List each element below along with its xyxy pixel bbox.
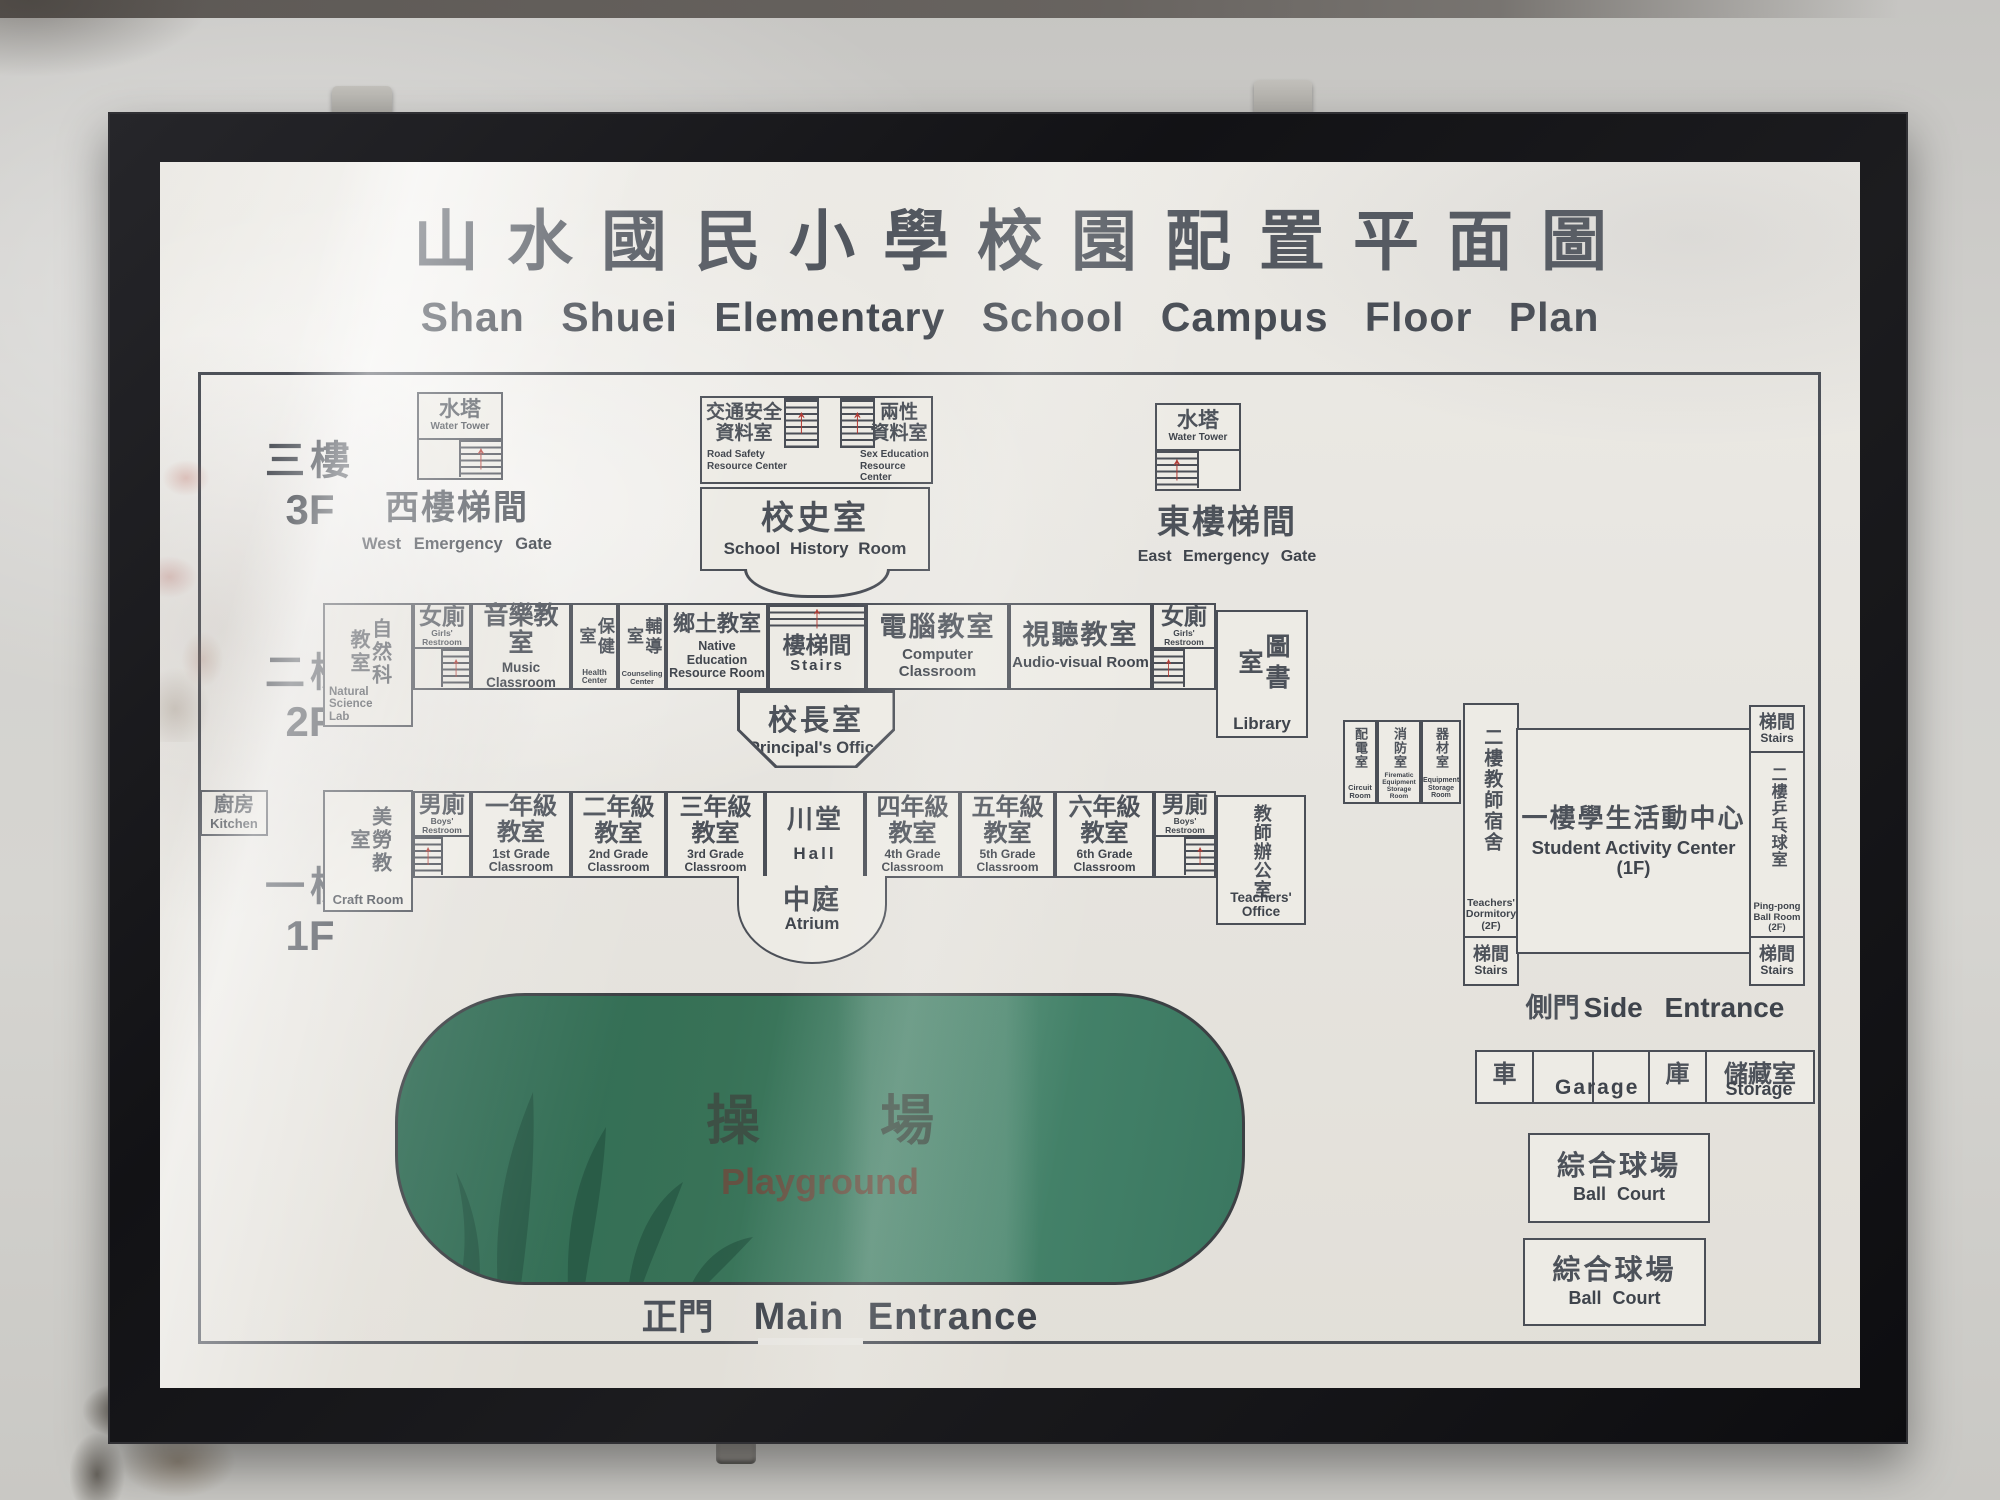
- room-fire-equipment: 消防室 Firematic Equipment Storage Room: [1377, 720, 1421, 804]
- stairs-icon: ↑: [415, 837, 441, 875]
- room-stairs-ne: 梯間 Stairs: [1749, 705, 1805, 753]
- room-student-activity-center: 一樓學生活動中心 Student Activity Center (1F): [1516, 728, 1751, 954]
- pingpong-label-en: Ping-pong Ball Room (2F): [1751, 902, 1803, 933]
- up-arrow-icon: ↑: [451, 652, 461, 682]
- sex-education-label: 兩性 資料室: [868, 403, 930, 444]
- circuit-label-en: Circuit Room: [1345, 784, 1375, 800]
- room-girls-restroom-east: 女廁 Girls' Restroom ↑: [1152, 603, 1216, 690]
- up-arrow-icon: ↑: [475, 440, 487, 476]
- stairs-icon: ↑: [1184, 837, 1214, 875]
- up-arrow-icon: ↑: [423, 840, 433, 870]
- water-tower-cell: [1197, 451, 1239, 488]
- dorm-label-en: Teachers' Dormitory (2F): [1465, 898, 1517, 932]
- room-water-tower-west: 水塔 Water Tower ↑: [417, 392, 503, 480]
- up-arrow-icon: ↑: [1171, 451, 1183, 487]
- natsci-label-en: Natural Science Lab: [329, 686, 411, 723]
- up-arrow-icon: ↑: [812, 601, 823, 634]
- room-equipment-storage: 器材室 Equipment Storage Room: [1421, 720, 1461, 804]
- stairs-icon: ↑: [770, 605, 864, 631]
- storage-label-en: Storage: [1706, 1079, 1812, 1100]
- room-kitchen: 廚房 Kitchen: [200, 790, 268, 836]
- room-counseling-center: 輔導室 Counseling Center: [618, 603, 666, 690]
- room-resource-centers-3f: 交通安全 資料室 Road Safety Resource Center ↑ ↑…: [700, 396, 933, 484]
- restroom-cell: [415, 649, 441, 687]
- up-arrow-icon: ↑: [1164, 652, 1174, 682]
- room-native-education: 鄉土教室 Native Education Resource Room: [666, 603, 768, 690]
- side-entrance-label: 側門 Side Entrance: [1490, 986, 1820, 1025]
- floor-plan-sign: 山水國民小學校園配置平面圖 Shan Shuei Elementary Scho…: [160, 162, 1860, 1388]
- room-stairs-se: 梯間 Stairs: [1749, 936, 1805, 986]
- room-stairs-2f: ↑ 樓梯間 Stairs: [768, 603, 866, 690]
- restroom-cell: [441, 837, 469, 875]
- up-arrow-icon: ↑: [852, 404, 864, 440]
- playground-label-en: Playground: [721, 1161, 919, 1203]
- room-craft: 美勞教室 Craft Room: [323, 790, 413, 912]
- water-tower-cell: [419, 440, 459, 477]
- page-subtitle: Shan Shuei Elementary School Campus Floo…: [160, 294, 1860, 341]
- main-entrance-label: 正門 Main Entrance: [560, 1288, 1120, 1340]
- room-grade2: 二年級 教室 2nd Grade Classroom: [571, 791, 666, 878]
- room-girls-restroom-west: 女廁 Girls' Restroom ↑: [413, 603, 471, 690]
- stairs-icon: ↑: [441, 649, 469, 687]
- fire-label-en: Firematic Equipment Storage Room: [1379, 772, 1419, 800]
- room-boys-restroom-west: 男廁 Boys' Restroom ↑: [413, 791, 471, 878]
- room-grade1: 一年級 教室 1st Grade Classroom: [471, 791, 571, 878]
- west-gate-label: 西樓梯間 West Emergency Gate: [337, 480, 577, 554]
- playground-label-zh: 操場: [586, 1076, 1054, 1155]
- room-hall: 川堂 Hall: [765, 791, 865, 878]
- stairs-icon: ↑: [459, 440, 501, 477]
- room-water-tower-east: 水塔 Water Tower ↑: [1155, 403, 1241, 491]
- stairs-icon: ↑: [1154, 649, 1183, 687]
- room-grade3: 三年級 教室 3rd Grade Classroom: [666, 791, 765, 878]
- room-grade5: 五年級 教室 5th Grade Classroom: [960, 791, 1055, 878]
- road-safety-label-en: Road Safety Resource Center: [707, 449, 789, 472]
- picture-frame: 山水國民小學校園配置平面圖 Shan Shuei Elementary Scho…: [108, 112, 1908, 1444]
- room-computer-classroom: 電腦教室 Computer Classroom: [866, 603, 1009, 690]
- restroom-cell: [1183, 649, 1214, 687]
- room-teachers-dormitory: 二樓教師宿舍 Teachers' Dormitory (2F): [1463, 703, 1519, 938]
- road-safety-label: 交通安全 資料室: [704, 403, 784, 444]
- room-stairs-dorm: 梯間 Stairs: [1463, 936, 1519, 986]
- room-health-center: 保健室 Health Center: [571, 603, 618, 690]
- stairs-icon: ↑: [1157, 451, 1197, 488]
- page-title: 山水國民小學校園配置平面圖: [160, 188, 1860, 284]
- room-pingpong: 二樓乒乓球室 Ping-pong Ball Room (2F): [1749, 751, 1805, 938]
- stairs-icon: ↑: [784, 398, 819, 448]
- east-gate-label: 東樓梯間 East Emergency Gate: [1112, 495, 1342, 566]
- ball-court-1: 綜合球場 Ball Court: [1528, 1133, 1710, 1223]
- room-grade6: 六年級 教室 6th Grade Classroom: [1055, 791, 1154, 878]
- restroom-cell: [1156, 837, 1184, 875]
- playground-area: 操場 Playground: [395, 993, 1245, 1285]
- sex-education-label-en: Sex Education Resource Center: [860, 449, 932, 484]
- room-audio-visual: 視聽教室 Audio-visual Room: [1009, 603, 1152, 690]
- garage-cell-car: 車: [1477, 1052, 1532, 1102]
- room-boys-restroom-east: 男廁 Boys' Restroom ↑: [1154, 791, 1216, 878]
- equip-label-en: Equipment Storage Room: [1423, 777, 1459, 800]
- native-ed-label-en: Native Education Resource Room: [668, 640, 766, 681]
- plant-reflection: [438, 1032, 858, 1285]
- up-arrow-icon: ↑: [796, 404, 808, 440]
- room-teachers-office: 教師辦公室 Teachers' Office: [1216, 795, 1306, 925]
- room-grade4: 四年級 教室 4th Grade Classroom: [865, 791, 960, 878]
- ball-court-2: 綜合球場 Ball Court: [1523, 1238, 1706, 1326]
- room-music-classroom: 音樂教室 Music Classroom: [471, 603, 571, 690]
- up-arrow-icon: ↑: [1195, 840, 1205, 870]
- room-natural-science-lab: 自然科教室 Natural Science Lab: [323, 603, 413, 727]
- photo-scene: 山水國民小學校園配置平面圖 Shan Shuei Elementary Scho…: [0, 0, 2000, 1500]
- room-library: 圖書室 Library: [1216, 610, 1308, 738]
- room-school-history: 校史室 School History Room: [700, 487, 930, 571]
- room-circuit: 配電室 Circuit Room: [1343, 720, 1377, 804]
